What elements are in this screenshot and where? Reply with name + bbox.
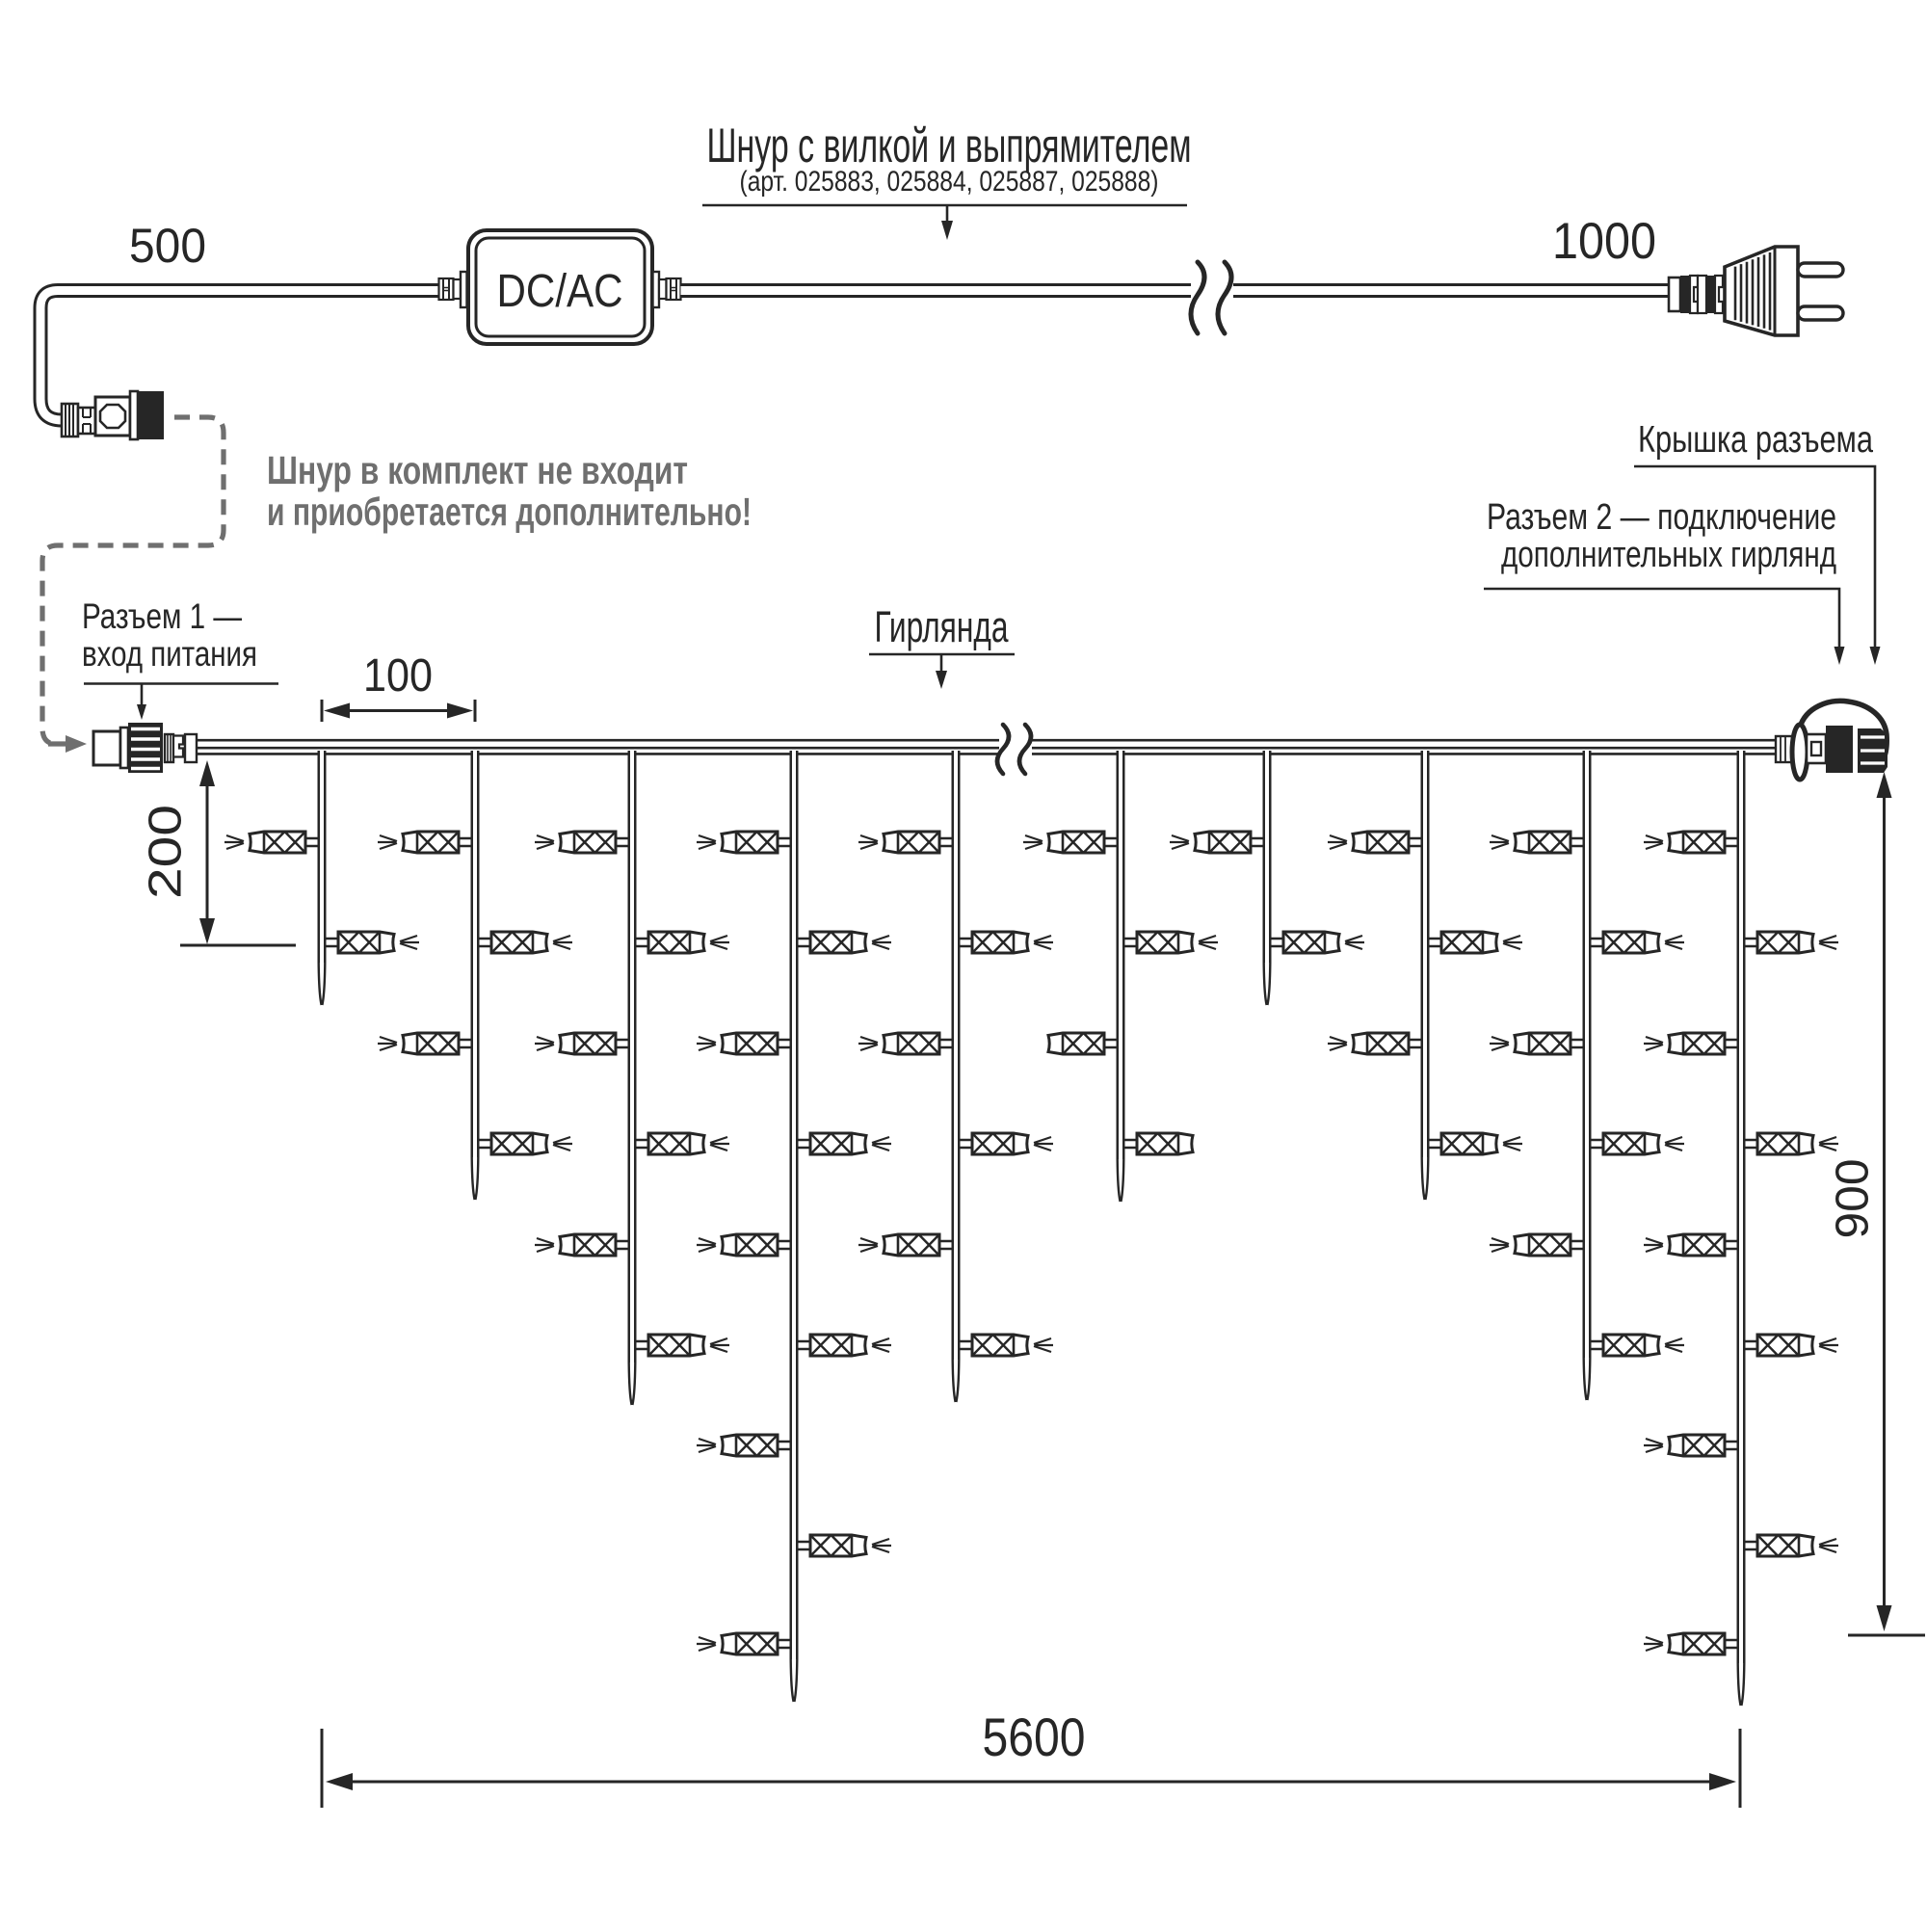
svg-text:Крышка разъема: Крышка разъема: [1638, 419, 1873, 461]
svg-text:500: 500: [129, 219, 206, 273]
svg-text:200: 200: [141, 805, 192, 899]
svg-text:100: 100: [363, 650, 433, 701]
svg-text:DC/AC: DC/AC: [497, 266, 623, 317]
svg-text:дополнительных гирлянд: дополнительных гирлянд: [1501, 535, 1836, 575]
svg-text:900: 900: [1828, 1159, 1879, 1239]
svg-text:Гирлянда: Гирлянда: [875, 602, 1010, 651]
svg-text:1000: 1000: [1552, 213, 1656, 270]
svg-text:и приобретается дополнительно!: и приобретается дополнительно!: [267, 490, 752, 534]
svg-text:Шнур в комплект не входит: Шнур в комплект не входит: [267, 448, 688, 492]
svg-text:Шнур с вилкой и выпрямителем: Шнур с вилкой и выпрямителем: [707, 119, 1192, 172]
svg-text:5600: 5600: [983, 1707, 1086, 1767]
svg-text:Разъем 1 —: Разъем 1 —: [82, 596, 242, 636]
svg-text:(арт. 025883, 025884, 025887,: (арт. 025883, 025884, 025887, 025888): [740, 166, 1159, 198]
svg-text:Разъем 2 — подключение: Разъем 2 — подключение: [1487, 497, 1836, 538]
svg-text:вход питания: вход питания: [82, 634, 257, 674]
